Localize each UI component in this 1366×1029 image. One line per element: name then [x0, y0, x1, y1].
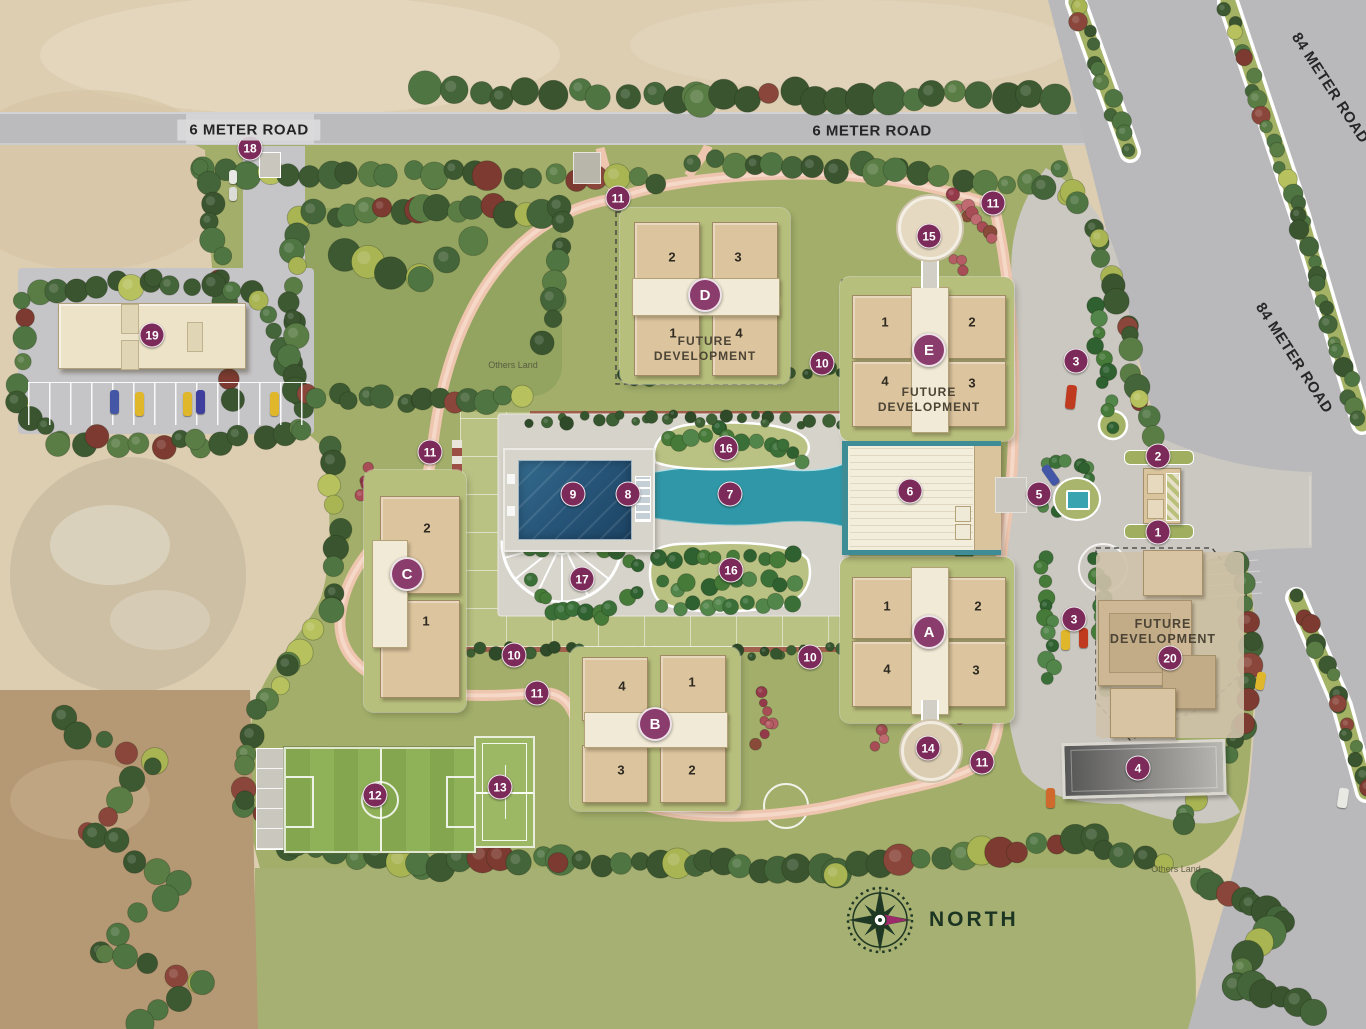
north-indicator: NORTH: [845, 885, 1019, 955]
road-label-6m-east: 6 METER ROAD: [812, 123, 931, 140]
road-label-84m-south: 84 METER ROAD: [1252, 300, 1336, 417]
compass-rose-icon: [845, 885, 915, 955]
future-dev-20-label: FUTURE DEVELOPMENT: [1110, 617, 1216, 647]
road-label-6m-west: 6 METER ROAD: [177, 120, 320, 141]
others-land-note-2: Others Land: [1151, 864, 1201, 874]
master-plan-canvas: 2 3 1 4 FUTURE DEVELOPMENT D 1 2 4 3 FUT…: [0, 0, 1366, 1029]
future-line: DEVELOPMENT: [1110, 632, 1216, 647]
north-label: NORTH: [929, 908, 1019, 932]
future-line: FUTURE: [1110, 617, 1216, 632]
road-label-84m-north: 84 METER ROAD: [1288, 30, 1366, 147]
labels-layer: 6 METER ROAD 6 METER ROAD 84 METER ROAD …: [0, 0, 1366, 1029]
others-land-note-1: Others Land: [488, 360, 538, 370]
